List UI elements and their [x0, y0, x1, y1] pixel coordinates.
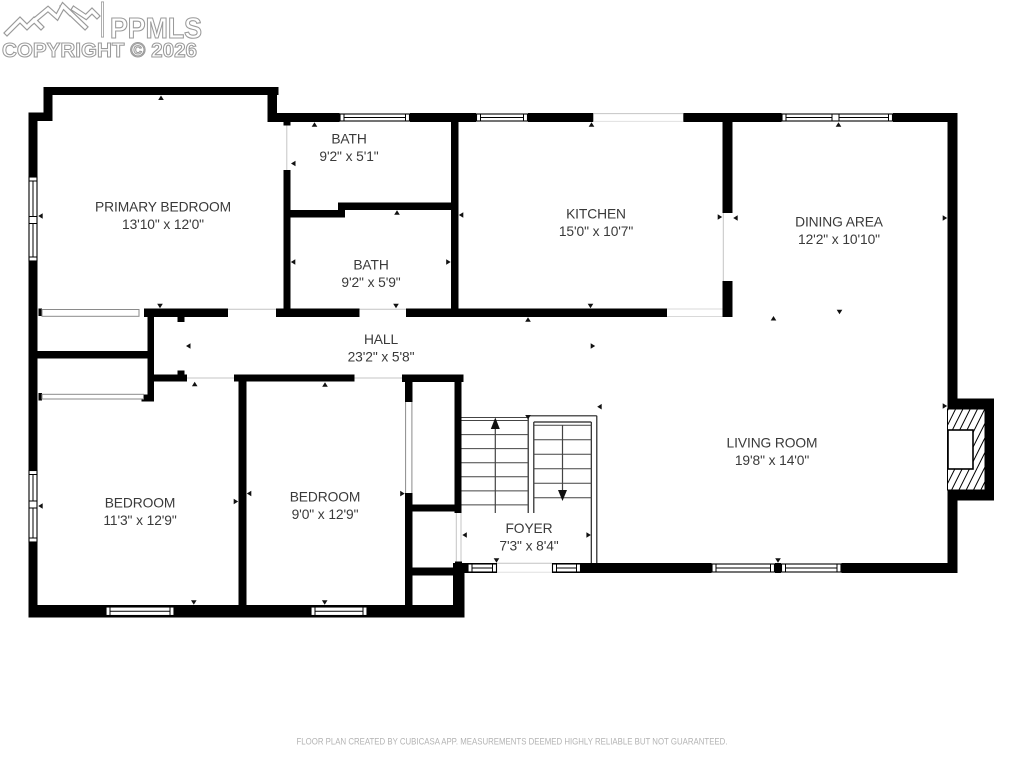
- svg-text:9'0" x 12'9": 9'0" x 12'9": [292, 507, 359, 522]
- svg-text:12'2" x 10'10": 12'2" x 10'10": [798, 232, 880, 247]
- svg-text:BATH: BATH: [353, 258, 388, 273]
- svg-text:13'10" x 12'0": 13'10" x 12'0": [122, 217, 204, 232]
- svg-text:FLOOR PLAN CREATED BY CUBICASA: FLOOR PLAN CREATED BY CUBICASA APP. MEAS…: [297, 737, 728, 748]
- svg-text:BEDROOM: BEDROOM: [290, 490, 361, 505]
- svg-text:23'2" x 5'8": 23'2" x 5'8": [348, 350, 415, 365]
- svg-text:BATH: BATH: [331, 132, 366, 147]
- svg-text:HALL: HALL: [364, 332, 399, 347]
- svg-text:7'3" x 8'4": 7'3" x 8'4": [499, 539, 558, 554]
- svg-text:11'3" x 12'9": 11'3" x 12'9": [103, 513, 177, 528]
- svg-text:PRIMARY BEDROOM: PRIMARY BEDROOM: [95, 200, 231, 215]
- svg-text:DINING AREA: DINING AREA: [795, 215, 884, 230]
- svg-text:FOYER: FOYER: [505, 521, 552, 536]
- svg-text:LIVING ROOM: LIVING ROOM: [727, 436, 818, 451]
- svg-text:15'0" x 10'7": 15'0" x 10'7": [559, 224, 634, 239]
- svg-text:9'2" x 5'1": 9'2" x 5'1": [319, 149, 378, 164]
- svg-text:BEDROOM: BEDROOM: [105, 496, 176, 511]
- svg-text:KITCHEN: KITCHEN: [566, 207, 626, 222]
- svg-text:9'2" x 5'9": 9'2" x 5'9": [341, 275, 400, 290]
- svg-text:19'8" x 14'0": 19'8" x 14'0": [735, 453, 810, 468]
- svg-text:COPYRIGHT © 2026: COPYRIGHT © 2026: [2, 39, 197, 62]
